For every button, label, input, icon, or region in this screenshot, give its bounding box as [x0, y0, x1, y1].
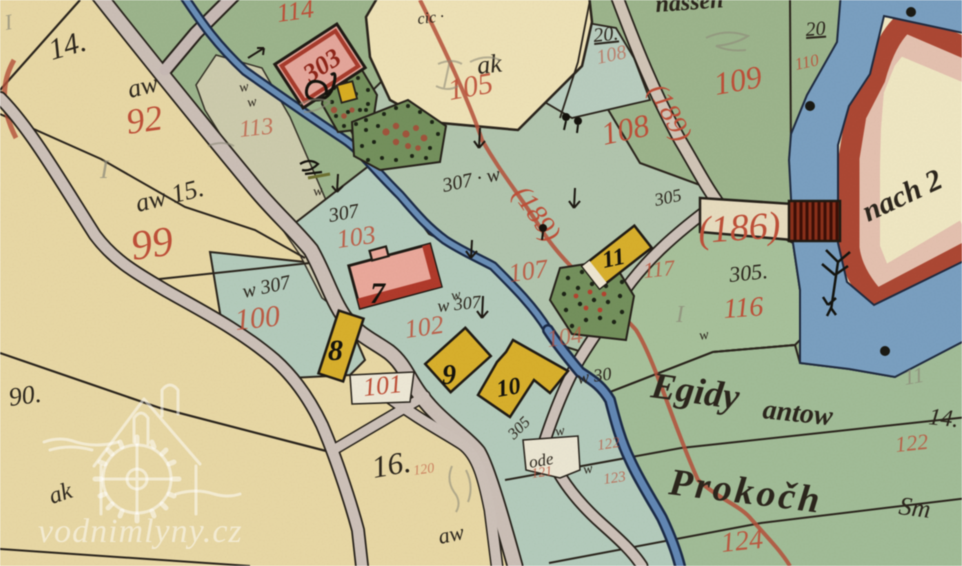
svg-text:vodnimlyny.cz: vodnimlyny.cz — [38, 513, 243, 550]
